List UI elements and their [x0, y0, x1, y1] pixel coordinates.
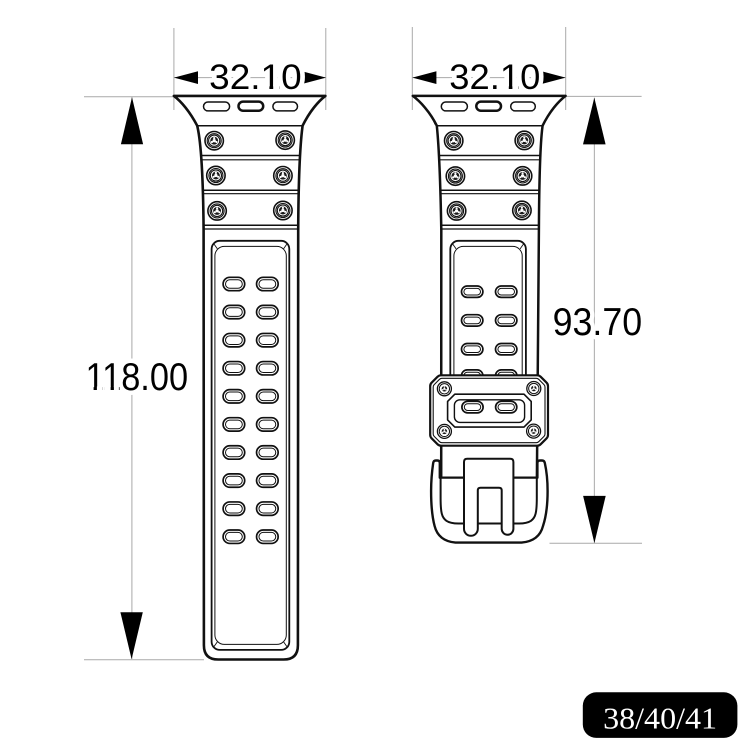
svg-text:93.70: 93.70 [553, 301, 643, 344]
svg-text:38/40/41: 38/40/41 [603, 701, 717, 735]
svg-text:32.10: 32.10 [209, 57, 302, 97]
svg-text:118.00: 118.00 [86, 356, 189, 399]
svg-text:32.10: 32.10 [449, 57, 540, 97]
